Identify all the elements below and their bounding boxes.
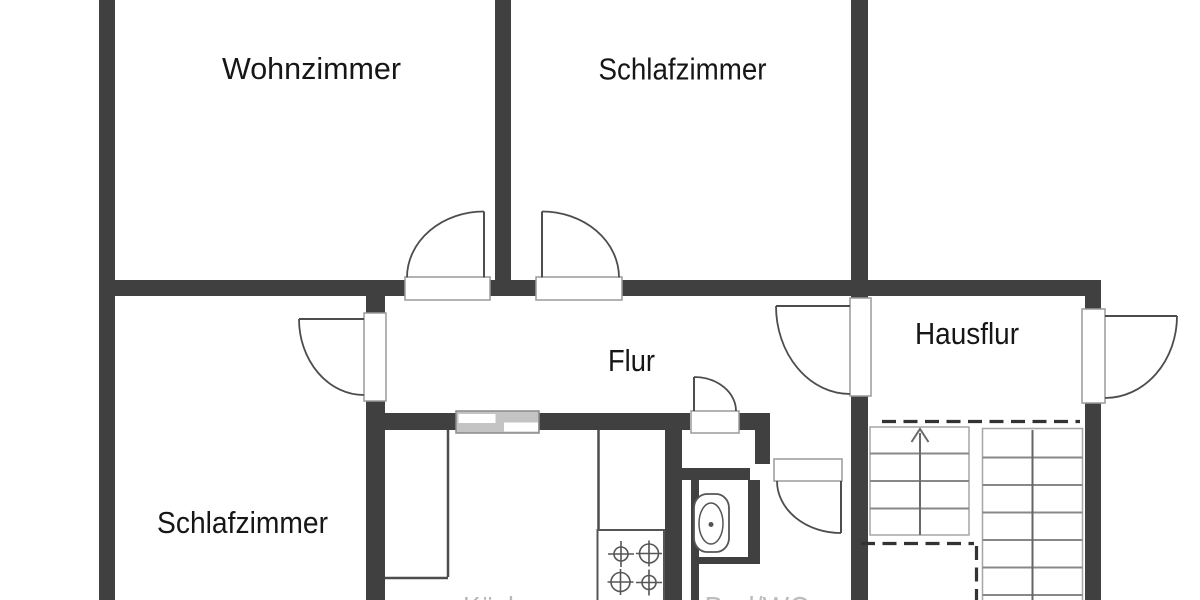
svg-text:Hausflur: Hausflur <box>915 316 1019 351</box>
svg-text:Schlafzimmer: Schlafzimmer <box>157 505 328 540</box>
svg-text:Küche: Küche <box>463 590 537 600</box>
svg-text:Wohnzimmer: Wohnzimmer <box>222 51 401 86</box>
svg-text:Schlafzimmer: Schlafzimmer <box>599 52 767 87</box>
svg-text:Flur: Flur <box>608 343 655 378</box>
svg-text:Bad/WC: Bad/WC <box>705 590 810 600</box>
